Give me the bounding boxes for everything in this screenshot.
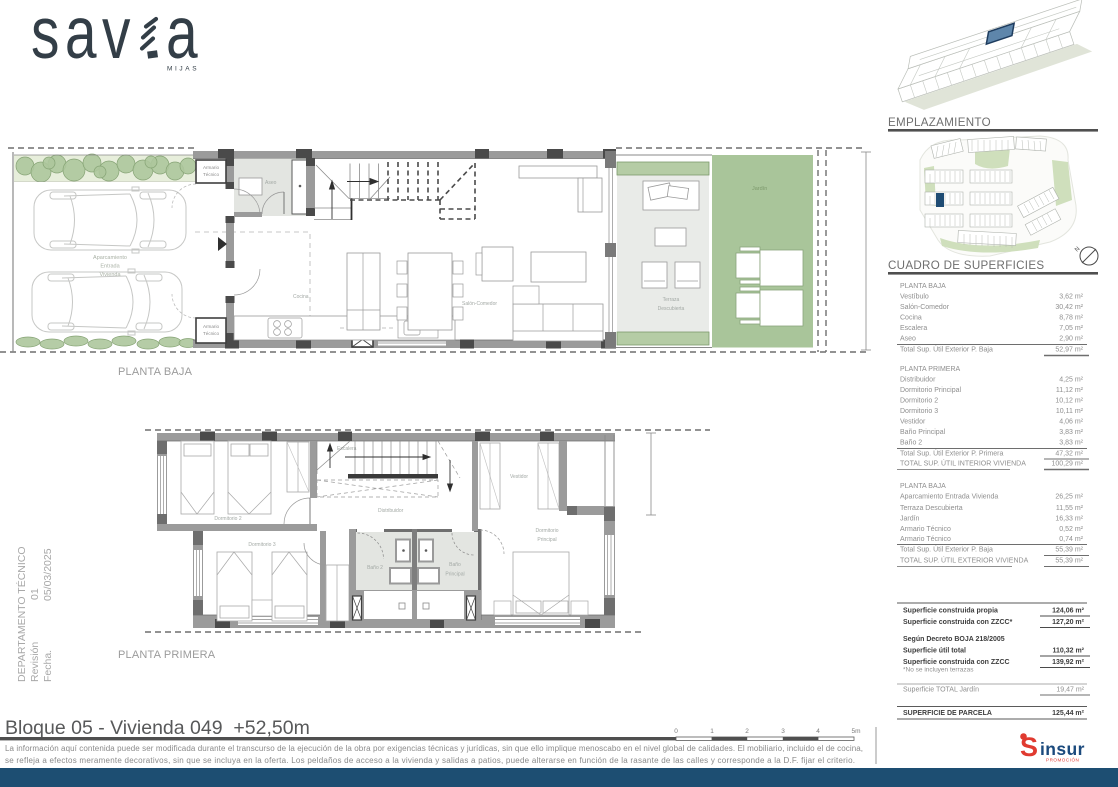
- svg-text:Aseo: Aseo: [900, 336, 916, 343]
- svg-text:Dormitorio Principal: Dormitorio Principal: [900, 387, 962, 394]
- svg-text:10,12 m²: 10,12 m²: [1055, 398, 1083, 405]
- svg-text:Jardín: Jardín: [752, 186, 767, 192]
- svg-text:Total Sup. Útil Exterior P. Ba: Total Sup. Útil Exterior P. Baja: [900, 545, 993, 554]
- svg-text:Baño: Baño: [449, 562, 461, 568]
- svg-text:Vestidor: Vestidor: [510, 474, 528, 480]
- svg-text:30,42 m²: 30,42 m²: [1055, 304, 1083, 311]
- svg-text:Superficie TOTAL Jardín: Superficie TOTAL Jardín: [903, 687, 979, 694]
- svg-text:3,62 m²: 3,62 m²: [1059, 294, 1083, 301]
- svg-text:TOTAL SUP. ÚTIL INTERIOR VIVIE: TOTAL SUP. ÚTIL INTERIOR VIVIENDA: [900, 459, 1026, 468]
- svg-text:Armario Técnico: Armario Técnico: [900, 526, 951, 533]
- svg-text:Armario: Armario: [203, 165, 220, 170]
- svg-text:0: 0: [674, 728, 678, 735]
- svg-text:Dormitorio 2: Dormitorio 2: [900, 398, 938, 405]
- svg-text:01: 01: [29, 588, 41, 600]
- svg-text:Total Sup. Útil Exterior P. Ba: Total Sup. Útil Exterior P. Baja: [900, 345, 993, 354]
- svg-text:3,83 m²: 3,83 m²: [1059, 440, 1083, 447]
- svg-text:Cocina: Cocina: [900, 315, 922, 322]
- svg-text:CUADRO DE SUPERFICIES: CUADRO DE SUPERFICIES: [888, 259, 1044, 272]
- svg-text:PLANTA PRIMERA: PLANTA PRIMERA: [118, 649, 216, 661]
- svg-text:10,11 m²: 10,11 m²: [1056, 408, 1084, 415]
- svg-text:Jardín: Jardín: [900, 516, 920, 523]
- svg-text:05/03/2025: 05/03/2025: [42, 548, 54, 601]
- svg-text:55,39 m²: 55,39 m²: [1055, 558, 1083, 565]
- svg-text:Vivienda: Vivienda: [100, 272, 122, 278]
- svg-text:Entrada: Entrada: [100, 264, 120, 270]
- svg-text:Armario: Armario: [203, 324, 220, 329]
- svg-text:8,78 m²: 8,78 m²: [1059, 315, 1083, 322]
- svg-text:Terraza: Terraza: [663, 297, 680, 303]
- svg-text:Cocina: Cocina: [293, 294, 309, 300]
- svg-text:S: S: [1020, 732, 1038, 762]
- svg-text:Total Sup. Útil Exterior P. Pr: Total Sup. Útil Exterior P. Primera: [900, 449, 1003, 458]
- svg-text:139,92 m²: 139,92 m²: [1052, 659, 1085, 666]
- svg-text:PLANTA BAJA: PLANTA BAJA: [900, 283, 946, 290]
- svg-text:Salón-Comedor: Salón-Comedor: [462, 301, 497, 307]
- svg-text:Principal: Principal: [537, 537, 556, 543]
- svg-text:Revisión: Revisión: [29, 642, 41, 682]
- svg-text:Superficie construida con ZZCC: Superficie construida con ZZCC: [903, 659, 1010, 666]
- svg-text:47,32 m²: 47,32 m²: [1055, 451, 1083, 458]
- svg-text:Superficie construida propia: Superficie construida propia: [903, 608, 998, 615]
- svg-text:16,33 m²: 16,33 m²: [1055, 516, 1083, 523]
- svg-text:Bloque 05 - Vivienda 049 +52,: Bloque 05 - Vivienda 049 +52,50m: [5, 717, 310, 739]
- svg-text:Dormitorio 3: Dormitorio 3: [900, 408, 938, 415]
- svg-text:Distribuidor: Distribuidor: [378, 508, 404, 514]
- svg-text:Principal: Principal: [445, 572, 464, 578]
- svg-text:3,83 m²: 3,83 m²: [1059, 429, 1083, 436]
- svg-text:a: a: [166, 0, 198, 74]
- svg-text:2: 2: [745, 728, 749, 735]
- svg-text:insur: insur: [1040, 739, 1085, 759]
- svg-text:55,39 m²: 55,39 m²: [1055, 547, 1083, 554]
- svg-text:11,55 m²: 11,55 m²: [1056, 505, 1084, 512]
- svg-text:Salón-Comedor: Salón-Comedor: [900, 304, 950, 311]
- svg-text:MIJAS: MIJAS: [167, 66, 199, 73]
- svg-text:0,52 m²: 0,52 m²: [1059, 526, 1083, 533]
- svg-text:se refleja a efectos meramente: se refleja a efectos meramente decorativ…: [5, 756, 855, 765]
- svg-text:Aseo: Aseo: [265, 180, 277, 186]
- svg-text:Superficie construida con ZZCC: Superficie construida con ZZCC*: [903, 619, 1013, 626]
- svg-text:110,32 m²: 110,32 m²: [1052, 648, 1084, 655]
- svg-text:Aparcamiento Entrada Vivienda: Aparcamiento Entrada Vivienda: [900, 494, 998, 501]
- svg-text:4,06 m²: 4,06 m²: [1059, 419, 1083, 426]
- svg-text:26,25 m²: 26,25 m²: [1055, 494, 1083, 501]
- svg-text:Técnico: Técnico: [203, 331, 220, 336]
- svg-text:PLANTA BAJA: PLANTA BAJA: [900, 483, 946, 490]
- svg-text:Aparcamiento: Aparcamiento: [93, 255, 127, 261]
- svg-text:3: 3: [781, 728, 785, 735]
- svg-text:19,47 m²: 19,47 m²: [1056, 687, 1084, 694]
- svg-text:125,44 m²: 125,44 m²: [1052, 710, 1085, 717]
- svg-text:PROMOCIÓN: PROMOCIÓN: [1046, 757, 1079, 763]
- svg-text:Armario Técnico: Armario Técnico: [900, 536, 951, 543]
- svg-text:Superficie útil total: Superficie útil total: [903, 648, 966, 655]
- svg-text:100,29 m²: 100,29 m²: [1051, 461, 1083, 468]
- svg-text:Técnico: Técnico: [203, 172, 220, 177]
- svg-text:7,05 m²: 7,05 m²: [1059, 325, 1083, 332]
- svg-text:127,20 m²: 127,20 m²: [1052, 619, 1085, 626]
- svg-text:Baño Principal: Baño Principal: [900, 429, 946, 436]
- svg-text:Fecha.: Fecha.: [42, 650, 54, 682]
- svg-text:Dormitorio 3: Dormitorio 3: [248, 542, 275, 548]
- svg-text:DEPARTAMENTO TÉCNICO: DEPARTAMENTO TÉCNICO: [15, 546, 28, 682]
- svg-text:Escalera: Escalera: [900, 325, 927, 332]
- svg-text:La información aquí contenida: La información aquí contenida puede ser …: [5, 744, 863, 753]
- svg-text:2,90 m²: 2,90 m²: [1059, 336, 1083, 343]
- svg-text:*No se incluyen terrazas: *No se incluyen terrazas: [903, 667, 974, 674]
- svg-text:11,12 m²: 11,12 m²: [1056, 387, 1084, 394]
- svg-text:Terraza Descubierta: Terraza Descubierta: [900, 505, 963, 512]
- svg-text:5m: 5m: [851, 728, 860, 735]
- svg-text:Vestíbulo: Vestíbulo: [900, 294, 929, 301]
- svg-text:Baño 2: Baño 2: [900, 440, 922, 447]
- svg-text:4: 4: [816, 728, 820, 735]
- svg-text:PLANTA PRIMERA: PLANTA PRIMERA: [900, 366, 960, 373]
- svg-text:Dormitorio 2: Dormitorio 2: [214, 516, 241, 522]
- svg-text:Dormitorio: Dormitorio: [535, 528, 558, 534]
- svg-text:sav: sav: [31, 0, 136, 74]
- svg-text:Distribuidor: Distribuidor: [900, 377, 936, 384]
- svg-text:Baño 2: Baño 2: [367, 565, 383, 571]
- svg-text:52,97 m²: 52,97 m²: [1055, 347, 1083, 354]
- svg-text:Escalera: Escalera: [337, 446, 357, 452]
- svg-text:PLANTA BAJA: PLANTA BAJA: [118, 366, 193, 378]
- svg-text:124,06 m²: 124,06 m²: [1052, 608, 1085, 615]
- svg-text:1: 1: [710, 728, 714, 735]
- svg-text:EMPLAZAMIENTO: EMPLAZAMIENTO: [888, 116, 991, 129]
- svg-text:SUPERFICIE DE PARCELA: SUPERFICIE DE PARCELA: [903, 710, 992, 717]
- svg-text:4,25 m²: 4,25 m²: [1059, 377, 1083, 384]
- svg-text:0,74 m²: 0,74 m²: [1059, 536, 1083, 543]
- svg-text:TOTAL SUP. ÚTIL EXTERIOR VIVIE: TOTAL SUP. ÚTIL EXTERIOR VIVIENDA: [900, 556, 1029, 565]
- svg-text:Vestidor: Vestidor: [900, 419, 926, 426]
- svg-text:Según Decreto BOJA 218/2005: Según Decreto BOJA 218/2005: [903, 636, 1005, 643]
- svg-text:Descubierta: Descubierta: [658, 306, 685, 312]
